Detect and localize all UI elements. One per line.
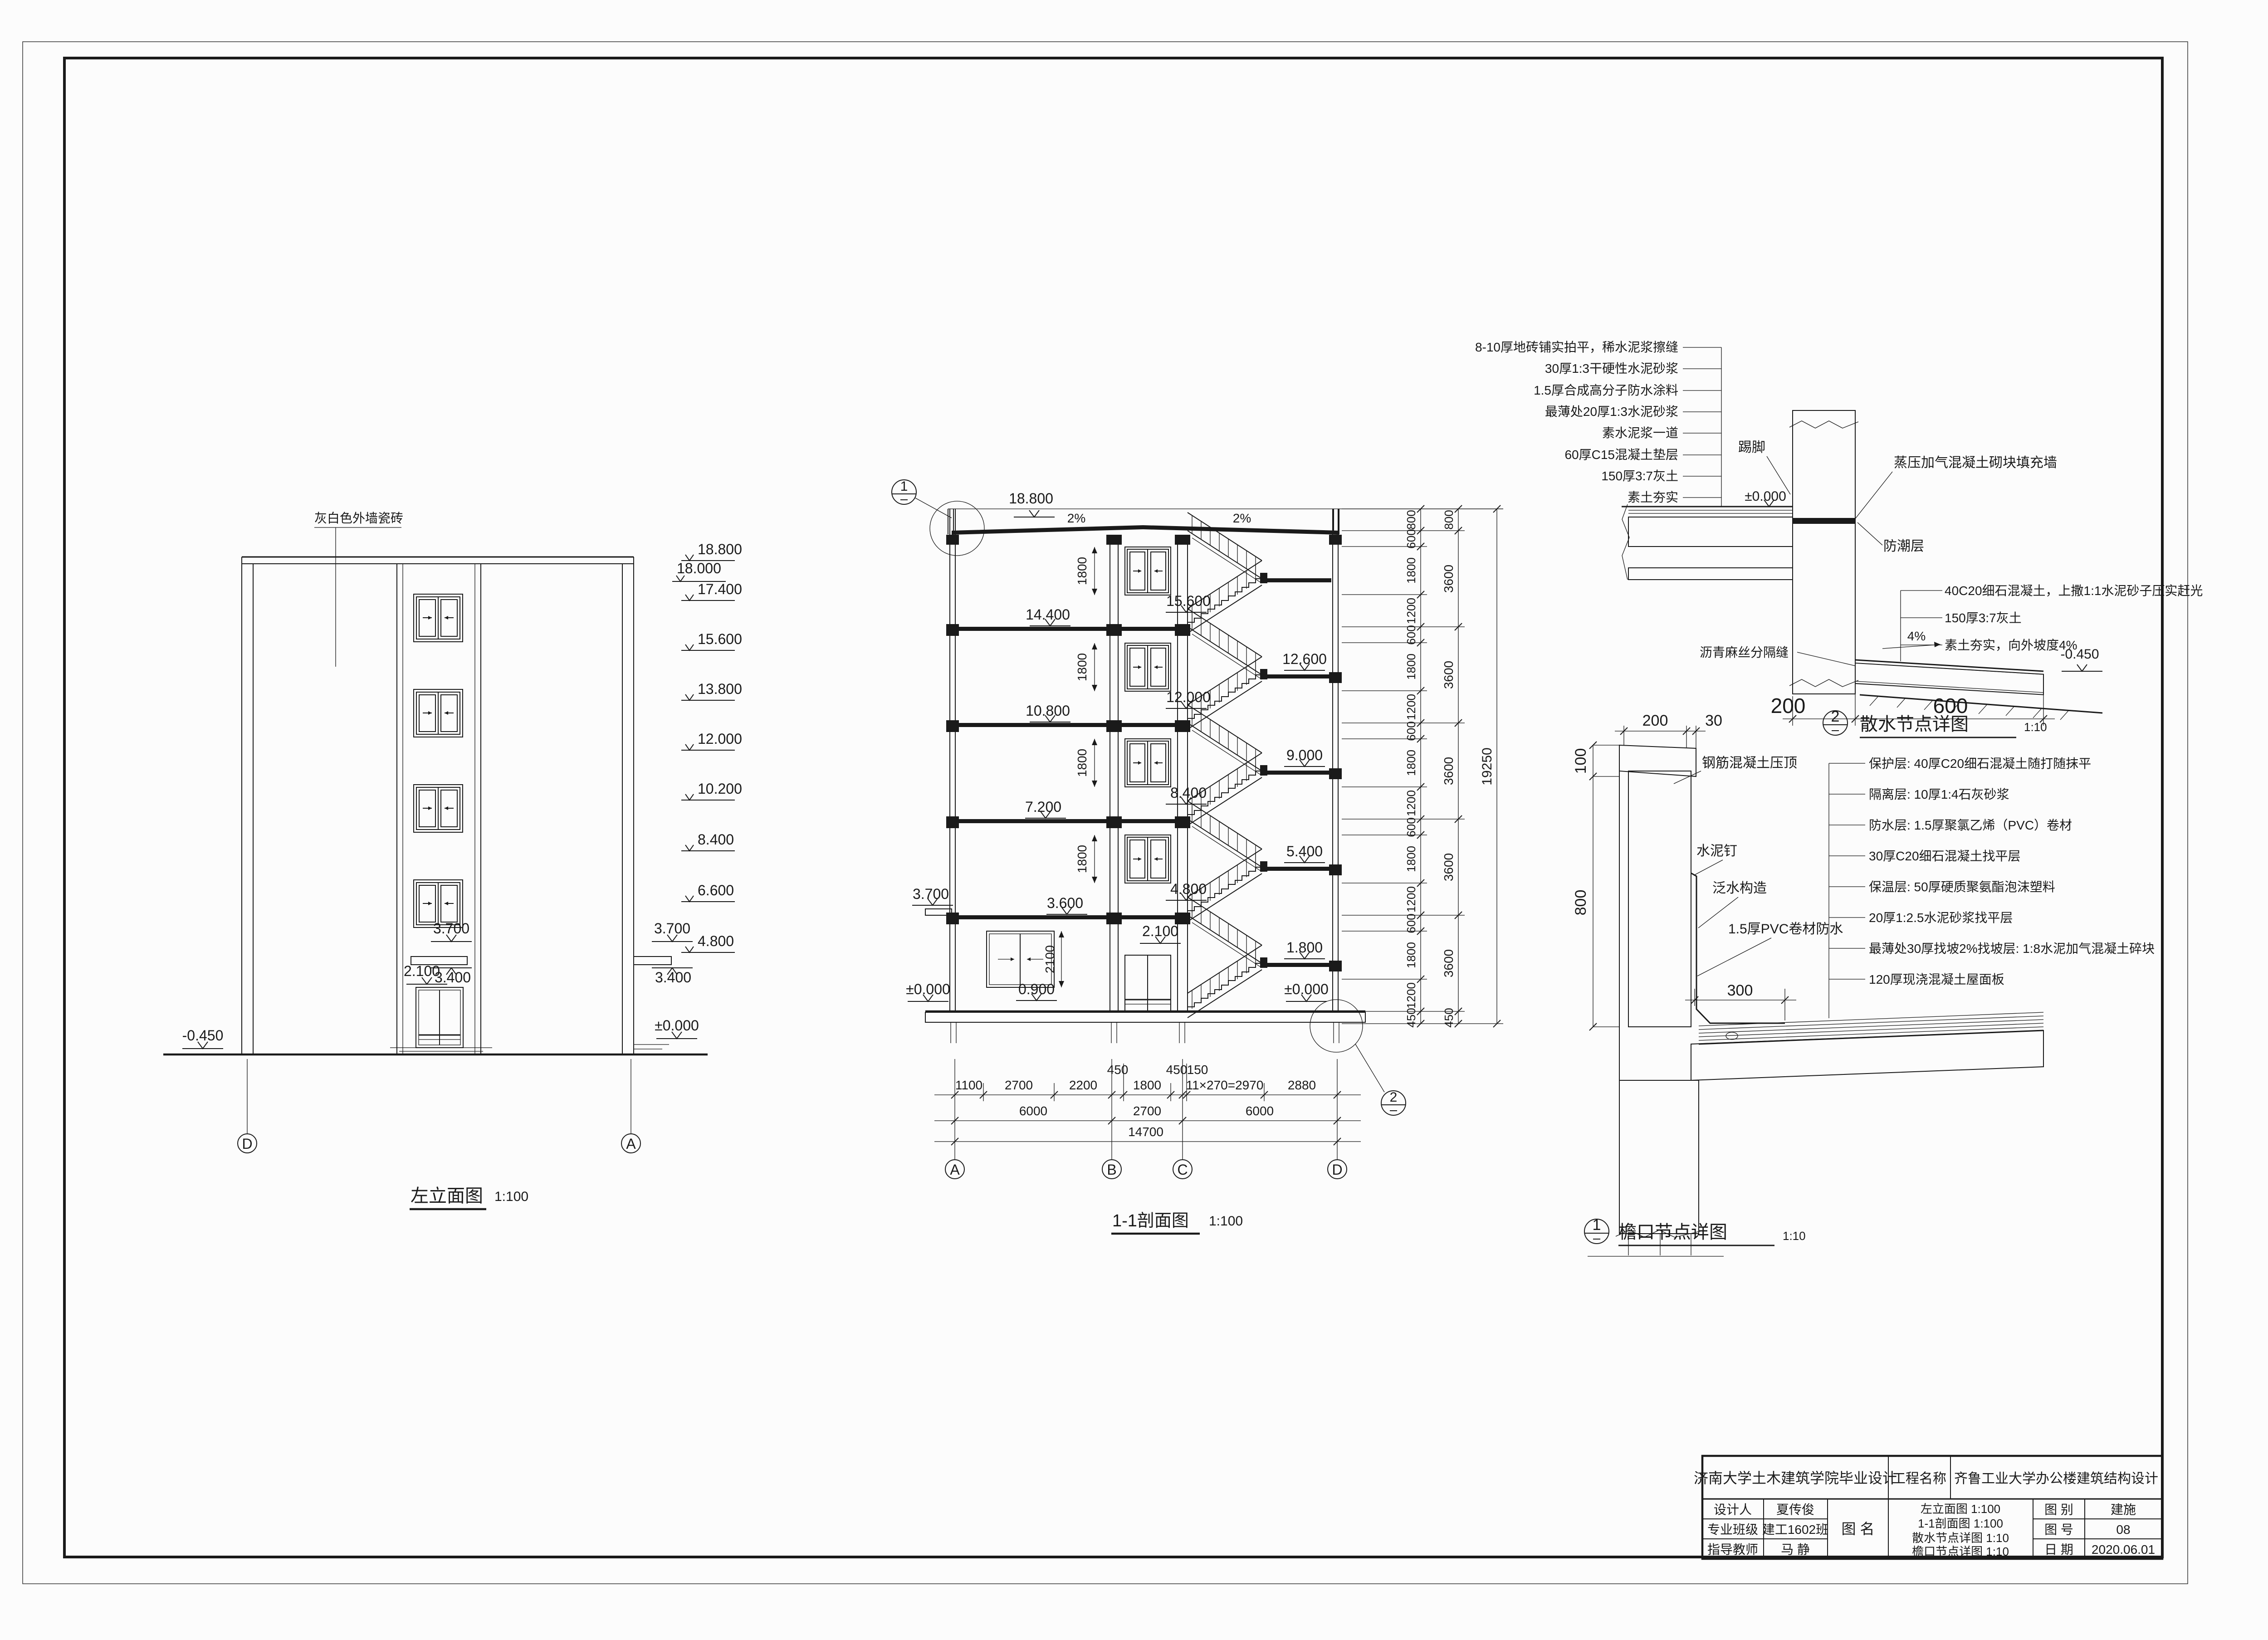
apron-layer: 素土夯实，向外坡度4% xyxy=(1945,638,2077,652)
window-icon xyxy=(414,594,463,642)
level: 12.000 xyxy=(698,731,742,747)
coping-label: 钢筋混凝土压顶 xyxy=(1702,756,1797,771)
svg-text:1200: 1200 xyxy=(1404,982,1418,1009)
level-zero: ±0.000 xyxy=(655,1017,699,1034)
svg-text:3600: 3600 xyxy=(1442,853,1456,881)
level: 15.600 xyxy=(698,631,742,647)
svg-text:2700: 2700 xyxy=(1133,1104,1161,1118)
window-icon xyxy=(414,689,463,737)
axis-label-d: D xyxy=(242,1136,252,1152)
svg-text:600: 600 xyxy=(1404,913,1418,933)
svg-text:2100: 2100 xyxy=(1043,945,1057,973)
window-icon xyxy=(414,785,463,832)
detail-title: 散水节点详图 xyxy=(1860,714,1969,734)
window-icon xyxy=(1125,547,1171,595)
drawing-name: 散水节点详图 1:10 xyxy=(1912,1531,2009,1545)
svg-text:1800: 1800 xyxy=(1075,749,1089,777)
category-value: 建施 xyxy=(2111,1503,2136,1517)
joint-label: 沥青麻丝分隔缝 xyxy=(1700,645,1789,659)
svg-text:1100: 1100 xyxy=(955,1078,982,1092)
roof-layer: 30厚C20细石混凝土找平层 xyxy=(1869,849,2021,863)
level: 18.800 xyxy=(698,541,742,557)
section-1-1: 2% 2% xyxy=(892,479,1503,1234)
level: 13.800 xyxy=(698,681,742,697)
section-title: 1-1剖面图 xyxy=(1112,1211,1189,1230)
svg-text:1800: 1800 xyxy=(1133,1078,1161,1092)
level: 9.000 xyxy=(1286,747,1323,763)
level: 14.400 xyxy=(1026,606,1070,623)
level: 5.400 xyxy=(1286,843,1323,859)
layer-label: 素土夯实 xyxy=(1628,490,1678,504)
entrance-door xyxy=(390,987,492,1051)
level: 2.100 xyxy=(1142,923,1178,939)
roof-layer: 最薄处30厚找坡2%找坡层: 1:8水泥加气混凝土碎块 xyxy=(1869,942,2155,956)
window-icon xyxy=(1125,739,1171,787)
dim-300: 300 xyxy=(1727,982,1753,999)
svg-text:3600: 3600 xyxy=(1442,757,1456,785)
school-name: 济南大学土木建筑学院毕业设计 xyxy=(1694,1470,1897,1486)
detail-ref-2: 2 xyxy=(1310,1000,1406,1115)
drawing-name-label: 图 名 xyxy=(1842,1521,1875,1537)
svg-text:600: 600 xyxy=(1404,817,1418,837)
vertical-dims: 800 600 1800 1200 600 1800 1200 600 1800… xyxy=(1342,505,1503,1028)
svg-text:1800: 1800 xyxy=(1404,846,1418,872)
dim-800: 800 xyxy=(1572,890,1589,916)
svg-text:1: 1 xyxy=(900,479,908,494)
number-label: 图 号 xyxy=(2044,1523,2073,1537)
dim-100: 100 xyxy=(1572,748,1589,774)
window-icon xyxy=(1125,643,1171,691)
slope-label: 2% xyxy=(1067,511,1085,525)
layer-label: 素水泥浆一道 xyxy=(1602,426,1678,440)
svg-text:14700: 14700 xyxy=(1128,1125,1163,1139)
svg-text:450: 450 xyxy=(1166,1063,1188,1077)
detail-number: 2 xyxy=(1831,708,1840,725)
svg-text:600: 600 xyxy=(1404,721,1418,741)
level: 12.600 xyxy=(1282,651,1327,667)
apron-layer: 40C20细石混凝土，上撒1:1水泥砂子压实赶光 xyxy=(1945,584,2203,598)
roof-layer: 防水层: 1.5厚聚氯乙烯（PVC）卷材 xyxy=(1869,818,2072,832)
layer-label: 8-10厚地砖铺实拍平，稀水泥浆擦缝 xyxy=(1475,340,1678,354)
flashing-label: 泛水构造 xyxy=(1712,881,1767,896)
date-value: 2020.06.01 xyxy=(2092,1542,2155,1557)
level-3400: 3.400 xyxy=(655,969,691,986)
detail-apron: 8-10厚地砖铺实拍平，稀水泥浆擦缝 30厚1:3干硬性水泥砂浆 1.5厚合成高… xyxy=(1475,340,2203,737)
level: ±0.000 xyxy=(1284,981,1329,997)
damp-proof-course xyxy=(1793,518,1855,524)
elevation-title: 左立面图 xyxy=(411,1186,483,1206)
svg-text:450: 450 xyxy=(1107,1063,1129,1077)
svg-text:3600: 3600 xyxy=(1442,949,1456,977)
level-top: 18.800 xyxy=(1009,490,1053,507)
level: 8.400 xyxy=(698,831,734,848)
roof-layer: 20厚1:2.5水泥砂浆找平层 xyxy=(1869,911,2013,925)
svg-text:450: 450 xyxy=(1442,1008,1456,1027)
detail-scale: 1:10 xyxy=(1783,1229,1806,1243)
svg-text:800: 800 xyxy=(1442,510,1456,529)
project-label: 工程名称 xyxy=(1892,1471,1946,1486)
level: 4.800 xyxy=(698,933,734,949)
elevation-scale: 1:100 xyxy=(494,1189,528,1204)
svg-text:6000: 6000 xyxy=(1246,1104,1274,1118)
window-icon xyxy=(1125,835,1171,883)
level-2100: 2.100 xyxy=(404,963,440,979)
svg-text:1800: 1800 xyxy=(1404,654,1418,680)
dim-30: 30 xyxy=(1705,712,1722,729)
apron-layer: 150厚3:7灰土 xyxy=(1945,611,2022,625)
detail-ref-1: 1 xyxy=(892,479,984,556)
svg-text:450: 450 xyxy=(1404,1008,1418,1027)
level: 4.800 xyxy=(1170,881,1207,897)
category-label: 图 别 xyxy=(2044,1503,2073,1517)
level: 12.000 xyxy=(1166,689,1211,705)
slope-label: 4% xyxy=(1907,629,1926,643)
slope-label: 2% xyxy=(1233,511,1251,525)
advisor-name: 马 静 xyxy=(1781,1542,1810,1557)
section-scale: 1:100 xyxy=(1209,1214,1243,1229)
layer-label: 1.5厚合成高分子防水涂料 xyxy=(1534,383,1678,397)
level-18000: 18.000 xyxy=(677,560,721,576)
axis-label: D xyxy=(1332,1162,1342,1178)
level: 17.400 xyxy=(698,581,742,597)
drawing-name: 左立面图 1:100 xyxy=(1921,1502,2000,1516)
date-label: 日 期 xyxy=(2044,1542,2073,1557)
roof-layer: 保护层: 40厚C20细石混凝土随打随抹平 xyxy=(1869,757,2091,771)
level: 10.800 xyxy=(1026,703,1070,719)
svg-text:3600: 3600 xyxy=(1442,661,1456,689)
level: 1.800 xyxy=(1286,939,1323,956)
designer-label: 设计人 xyxy=(1714,1503,1752,1517)
svg-text:1200: 1200 xyxy=(1404,790,1418,816)
level: 10.200 xyxy=(698,781,742,797)
roof-layer: 隔离层: 10厚1:4石灰砂浆 xyxy=(1869,787,2009,801)
level: 3.700 xyxy=(913,886,949,902)
svg-text:1800: 1800 xyxy=(1404,557,1418,584)
class-value: 建工1602班 xyxy=(1762,1523,1828,1537)
detail-number: 1 xyxy=(1593,1216,1601,1234)
svg-text:1800: 1800 xyxy=(1075,653,1089,681)
level: 3.600 xyxy=(1047,895,1083,911)
level: 7.200 xyxy=(1025,799,1061,815)
svg-text:2200: 2200 xyxy=(1069,1078,1097,1092)
level: 0.900 xyxy=(1018,981,1055,997)
dampproof-label: 防潮层 xyxy=(1883,539,1924,554)
svg-text:2: 2 xyxy=(1390,1090,1398,1105)
layer-label: 150厚3:7灰土 xyxy=(1601,469,1678,483)
dim-200: 200 xyxy=(1771,694,1806,717)
level: ±0.000 xyxy=(1745,489,1786,504)
sheet-border xyxy=(23,42,2188,1584)
left-elevation: 灰白色外墙瓷砖 18.000 18.800 17.400 15.600 13.8… xyxy=(163,511,742,1209)
level: 8.400 xyxy=(1170,785,1207,801)
svg-text:2880: 2880 xyxy=(1288,1078,1316,1092)
svg-text:1200: 1200 xyxy=(1404,886,1418,913)
svg-text:1800: 1800 xyxy=(1075,845,1089,873)
drawing-name: 檐口节点详图 1:10 xyxy=(1912,1545,2009,1558)
level-3700: 3.700 xyxy=(654,920,690,937)
svg-text:3600: 3600 xyxy=(1442,565,1456,593)
svg-text:11×270=2970: 11×270=2970 xyxy=(1186,1078,1264,1092)
roof-layer: 保温层: 50厚硬质聚氨酯泡沫塑料 xyxy=(1869,880,2055,894)
svg-text:19250: 19250 xyxy=(1480,747,1495,785)
level-3700: 3.700 xyxy=(433,920,469,937)
svg-text:6000: 6000 xyxy=(1019,1104,1047,1118)
skirting-label: 踢脚 xyxy=(1738,440,1765,455)
advisor-label: 指导教师 xyxy=(1707,1542,1758,1557)
svg-text:800: 800 xyxy=(1404,510,1418,529)
level-minus: -0.450 xyxy=(182,1027,224,1044)
drawing-sheet: 灰白色外墙瓷砖 18.000 18.800 17.400 15.600 13.8… xyxy=(0,0,2268,1640)
axis-label: C xyxy=(1177,1162,1188,1178)
svg-text:1200: 1200 xyxy=(1404,694,1418,720)
level: 6.600 xyxy=(698,882,734,898)
class-label: 专业班级 xyxy=(1707,1523,1758,1537)
svg-text:600: 600 xyxy=(1404,529,1418,548)
svg-text:150: 150 xyxy=(1187,1063,1208,1077)
level: 15.600 xyxy=(1166,593,1211,609)
detail-scale: 1:10 xyxy=(2024,720,2047,734)
project-name: 齐鲁工业大学办公楼建筑结构设计 xyxy=(1954,1471,2158,1486)
svg-text:600: 600 xyxy=(1404,625,1418,644)
wall-label: 蒸压加气混凝土砌块填充墙 xyxy=(1894,455,2057,470)
designer-name: 夏传俊 xyxy=(1776,1503,1814,1517)
layer-label: 最薄处20厚1:3水泥砂浆 xyxy=(1545,405,1678,419)
level: ±0.000 xyxy=(906,981,950,997)
title-block: 济南大学土木建筑学院毕业设计 工程名称 齐鲁工业大学办公楼建筑结构设计 设计人 … xyxy=(1694,1456,2162,1559)
material-note: 灰白色外墙瓷砖 xyxy=(314,511,403,525)
roof-layer: 120厚现浇混凝土屋面板 xyxy=(1869,972,2004,986)
detail-eave: 200 30 100 800 钢筋混凝土压顶 水泥钉 泛水构造 1.5厚PVC卷… xyxy=(1572,712,2155,1256)
section-dims: 1100 2700 2200 450 1800 450 150 11×270=2… xyxy=(934,1059,1361,1159)
svg-text:1800: 1800 xyxy=(1075,557,1089,585)
svg-text:1800: 1800 xyxy=(1404,750,1418,776)
svg-text:1800: 1800 xyxy=(1404,942,1418,968)
layer-label: 60厚C15混凝土垫层 xyxy=(1564,448,1678,462)
level: -0.450 xyxy=(2060,647,2099,662)
number-value: 08 xyxy=(2116,1523,2130,1537)
axis-label: A xyxy=(950,1162,960,1178)
layer-label: 30厚1:3干硬性水泥砂浆 xyxy=(1545,361,1678,376)
axis-label-a: A xyxy=(626,1136,636,1152)
nail-label: 水泥钉 xyxy=(1696,844,1737,859)
drawing-name: 1-1剖面图 1:100 xyxy=(1918,1517,2003,1530)
svg-text:2700: 2700 xyxy=(1005,1078,1033,1092)
dim-200: 200 xyxy=(1642,712,1668,729)
pvc-label: 1.5厚PVC卷材防水 xyxy=(1728,922,1843,937)
axis-label: B xyxy=(1107,1162,1116,1178)
ground-door xyxy=(1125,955,1171,1011)
svg-text:1200: 1200 xyxy=(1404,598,1418,624)
detail-title: 檐口节点详图 xyxy=(1618,1222,1727,1242)
